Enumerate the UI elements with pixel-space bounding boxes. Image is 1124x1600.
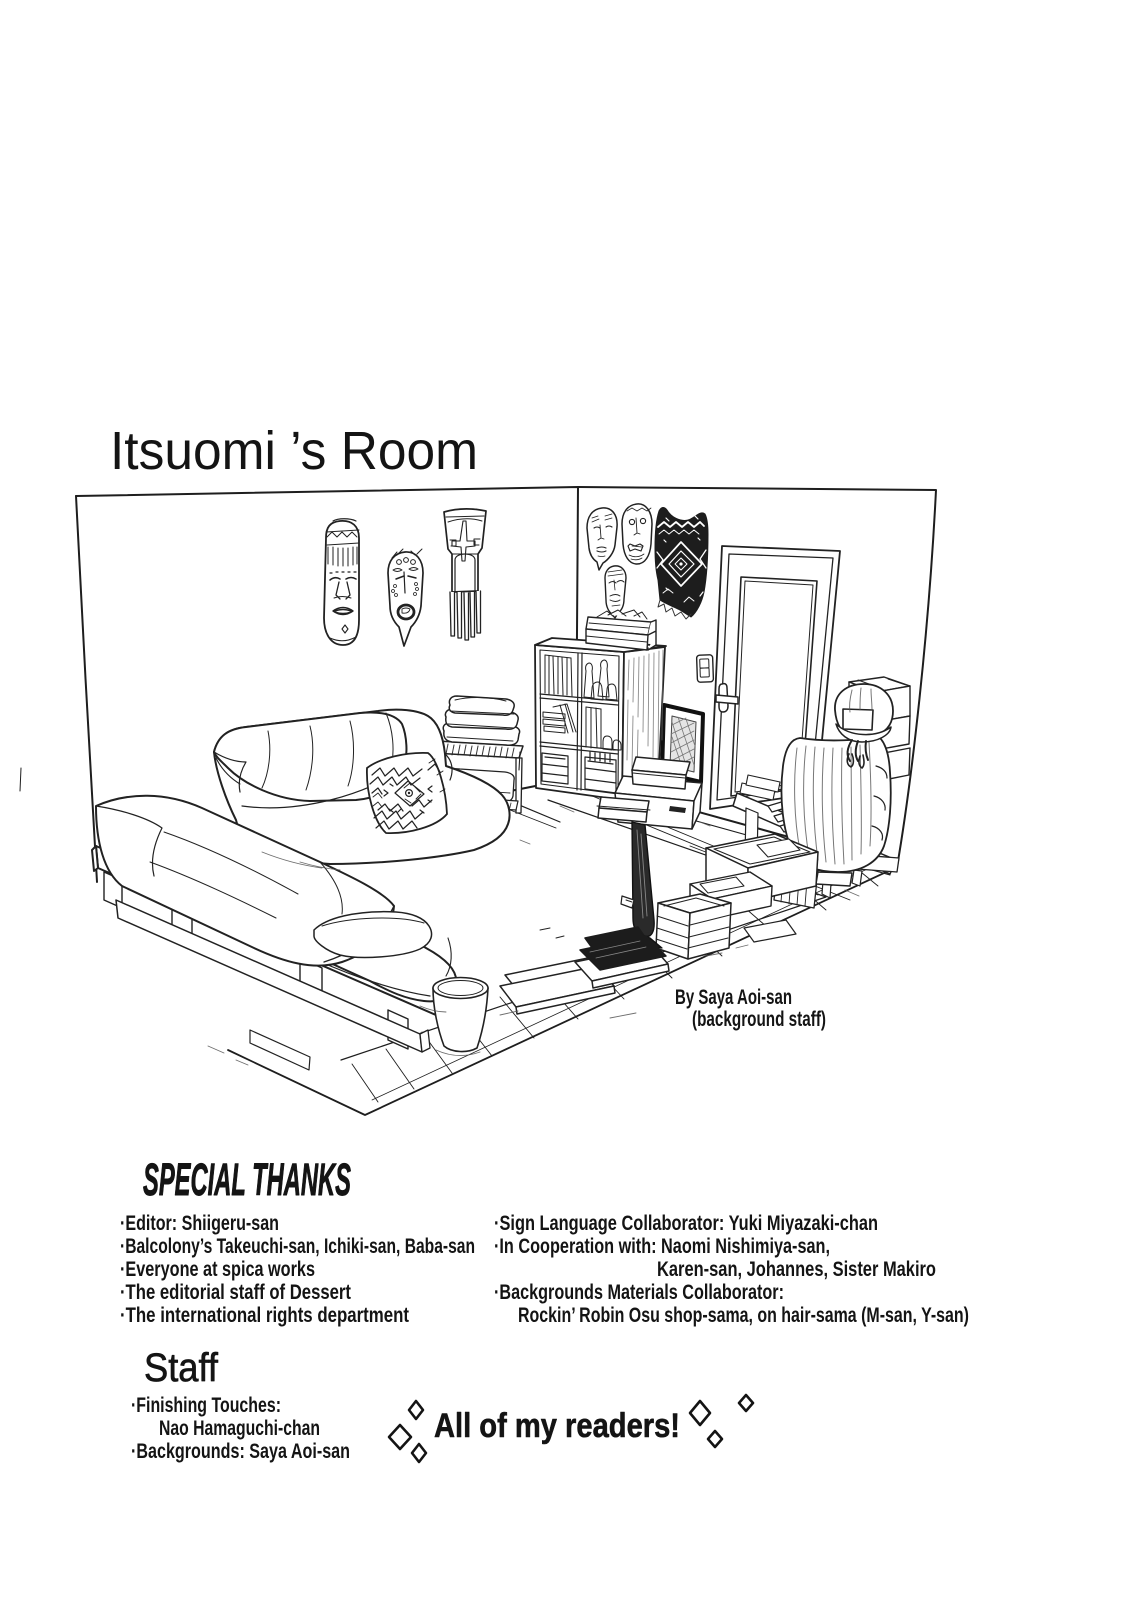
svg-text:Staff: Staff bbox=[144, 1346, 219, 1390]
svg-text:Nao Hamaguchi-chan: Nao Hamaguchi-chan bbox=[159, 1417, 320, 1440]
svg-text:By Saya Aoi-san: By Saya Aoi-san bbox=[675, 986, 792, 1009]
svg-text:·Finishing Touches:: ·Finishing Touches: bbox=[131, 1394, 281, 1417]
svg-text:·In Cooperation with: Naomi Ni: ·In Cooperation with: Naomi Nishimiya-sa… bbox=[494, 1235, 830, 1258]
svg-text:·The international rights depa: ·The international rights department bbox=[120, 1304, 409, 1327]
svg-text:·Sign Language Collaborator: Y: ·Sign Language Collaborator: Yuki Miyaza… bbox=[494, 1212, 878, 1235]
svg-text:·Backgrounds Materials Collabo: ·Backgrounds Materials Collaborator: bbox=[494, 1281, 784, 1304]
svg-text:All of my readers!: All of my readers! bbox=[434, 1407, 680, 1445]
svg-text:·Backgrounds: Saya Aoi-san: ·Backgrounds: Saya Aoi-san bbox=[131, 1440, 350, 1463]
svg-text:·Everyone at spica works: ·Everyone at spica works bbox=[120, 1258, 315, 1281]
svg-text:Itsuomi ’s Room: Itsuomi ’s Room bbox=[110, 421, 478, 481]
svg-text:·The editorial staff of Desser: ·The editorial staff of Dessert bbox=[120, 1281, 351, 1304]
svg-text:SPECIAL THANKS: SPECIAL THANKS bbox=[143, 1154, 351, 1205]
svg-text:·Editor: Shiigeru-san: ·Editor: Shiigeru-san bbox=[120, 1212, 279, 1235]
svg-text:Rockin’ Robin Osu shop-sama, o: Rockin’ Robin Osu shop-sama, on hair-sam… bbox=[518, 1304, 969, 1327]
svg-text:(background staff): (background staff) bbox=[692, 1008, 826, 1031]
svg-text:Karen-san, Johannes, Sister Ma: Karen-san, Johannes, Sister Makiro bbox=[657, 1258, 936, 1281]
svg-text:·Balcolony’s Takeuchi-san, Ich: ·Balcolony’s Takeuchi-san, Ichiki-san, B… bbox=[120, 1235, 475, 1258]
